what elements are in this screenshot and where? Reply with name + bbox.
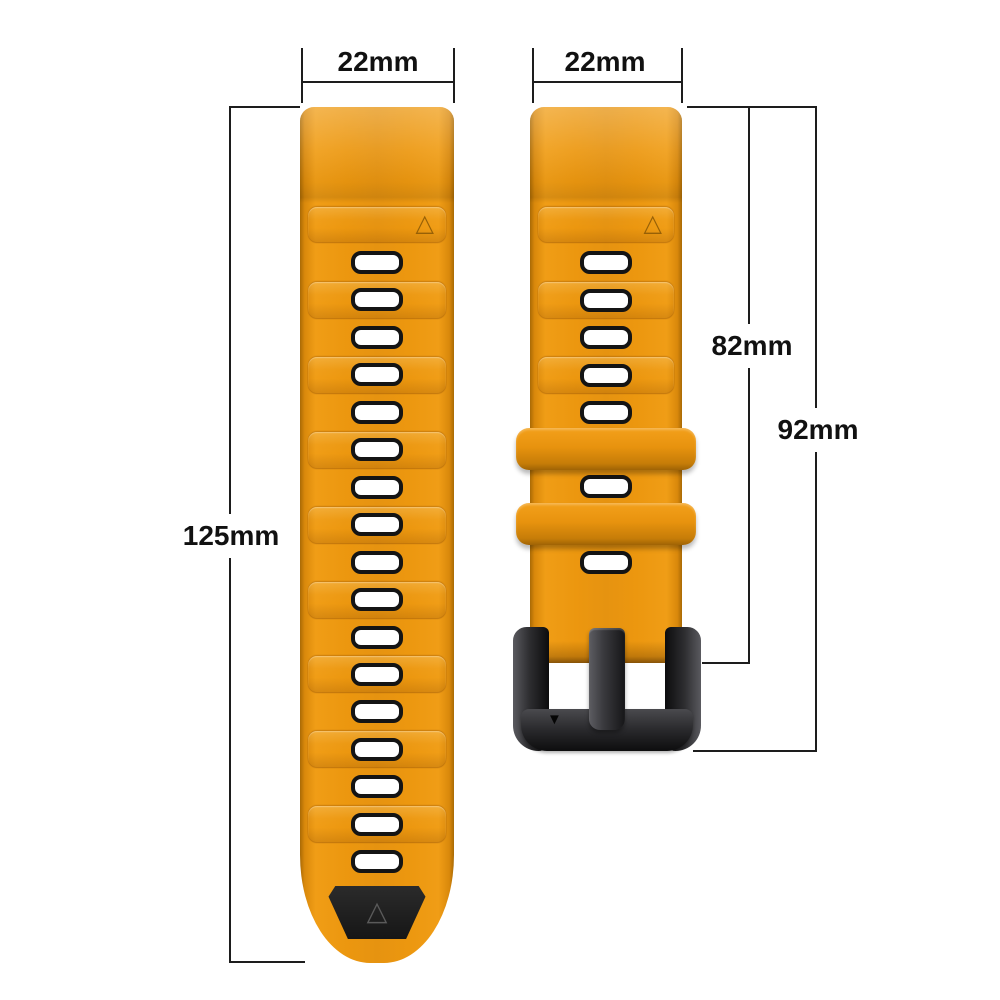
triangle-down-icon: ▼ <box>547 712 562 727</box>
strap-top-panel: △ <box>308 207 446 242</box>
dim-right-width-tick-right <box>681 48 683 103</box>
dim-left-length-tick-bottom <box>229 961 305 963</box>
strap-adjustment-hole <box>351 513 403 536</box>
watch-strap-long-piece: △ △ <box>300 107 454 963</box>
strap-dimension-diagram: △ △ △ ▼ 22mm 22mm 125mm 82mm 9 <box>0 0 1000 1000</box>
strap-adjustment-hole <box>351 288 403 311</box>
strap-adjustment-hole <box>351 850 403 873</box>
strap-adjustment-hole <box>580 401 632 424</box>
strap-adjustment-hole <box>580 551 632 574</box>
strap-adjustment-hole <box>351 813 403 836</box>
strap-keeper-loop <box>516 428 696 470</box>
buckle-tongue <box>589 628 625 730</box>
strap-adjustment-hole <box>351 738 403 761</box>
strap-adjustment-hole <box>351 700 403 723</box>
strap-adjustment-hole <box>351 588 403 611</box>
dim-left-length-tick-top <box>229 106 300 108</box>
dim-82mm-line <box>748 106 750 664</box>
strap-tip-black-patch: △ <box>329 886 426 939</box>
strap-keeper-loop <box>516 503 696 545</box>
strap-adjustment-hole <box>580 251 632 274</box>
strap-adjustment-hole <box>580 326 632 349</box>
strap-adjustment-hole <box>351 251 403 274</box>
dim-right-width-line <box>532 81 683 83</box>
dim-right-width-tick-left <box>532 48 534 103</box>
strap-adjustment-hole <box>351 626 403 649</box>
strap-adjustment-hole <box>351 663 403 686</box>
strap-adjustment-hole <box>351 775 403 798</box>
strap-adjustment-hole <box>580 475 632 498</box>
dim-right-length-tick-top <box>687 106 817 108</box>
strap-adjustment-hole <box>351 363 403 386</box>
watch-strap-buckle-piece: △ <box>530 107 682 663</box>
dim-label-total-length: 92mm <box>771 408 866 452</box>
triangle-up-icon: △ <box>416 212 434 236</box>
strap-adjustment-hole <box>351 551 403 574</box>
strap-adjustment-hole <box>351 476 403 499</box>
dim-label-length-to-buckle: 82mm <box>705 324 800 368</box>
dim-82mm-tick-bottom <box>702 662 750 664</box>
buckle: ▼ <box>513 627 701 751</box>
strap-adjustment-hole <box>351 326 403 349</box>
dim-92mm-tick-bottom <box>693 750 817 752</box>
strap-adjustment-hole <box>580 364 632 387</box>
strap-adjustment-hole <box>580 289 632 312</box>
dim-label-left-width: 22mm <box>338 46 419 78</box>
dim-label-left-length: 125mm <box>176 514 287 558</box>
dim-label-right-width: 22mm <box>565 46 646 78</box>
dim-left-width-tick-right <box>453 48 455 103</box>
strap-top-panel: △ <box>538 207 674 242</box>
dim-left-width-tick-left <box>301 48 303 103</box>
strap-adjustment-hole <box>351 438 403 461</box>
strap-adjustment-hole <box>351 401 403 424</box>
triangle-up-icon: △ <box>367 898 388 925</box>
dim-left-width-line <box>301 81 455 83</box>
triangle-up-icon: △ <box>644 212 662 236</box>
